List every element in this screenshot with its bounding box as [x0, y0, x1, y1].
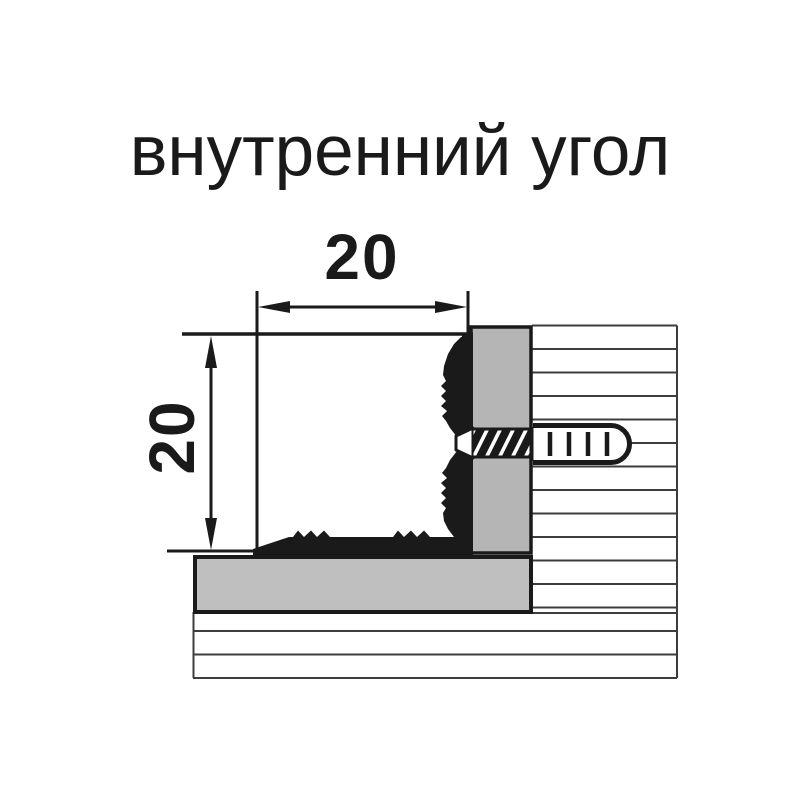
- profile-lower-bulge: [441, 451, 473, 547]
- profile-bottom-flange: [253, 531, 473, 556]
- corner-profile-cross-section-drawing: [0, 0, 800, 800]
- dimension-lines: [167, 291, 473, 557]
- height-dimension-label: 20: [137, 337, 207, 537]
- floor-layer-lines: [193, 612, 677, 678]
- width-arrow-left: [258, 301, 290, 313]
- wall-hatch-lines: [532, 326, 677, 679]
- width-dimension-label: 20: [262, 222, 462, 292]
- profile-upper-bulge: [441, 334, 473, 437]
- dimension-arrowheads: [205, 301, 467, 550]
- floor-panel: [195, 557, 531, 612]
- corner-profile-black-section: [253, 334, 473, 556]
- product-diagram-internal-corner: внутренний угол: [0, 0, 800, 800]
- dowel-anchor: [532, 426, 630, 463]
- width-arrow-right: [435, 301, 467, 313]
